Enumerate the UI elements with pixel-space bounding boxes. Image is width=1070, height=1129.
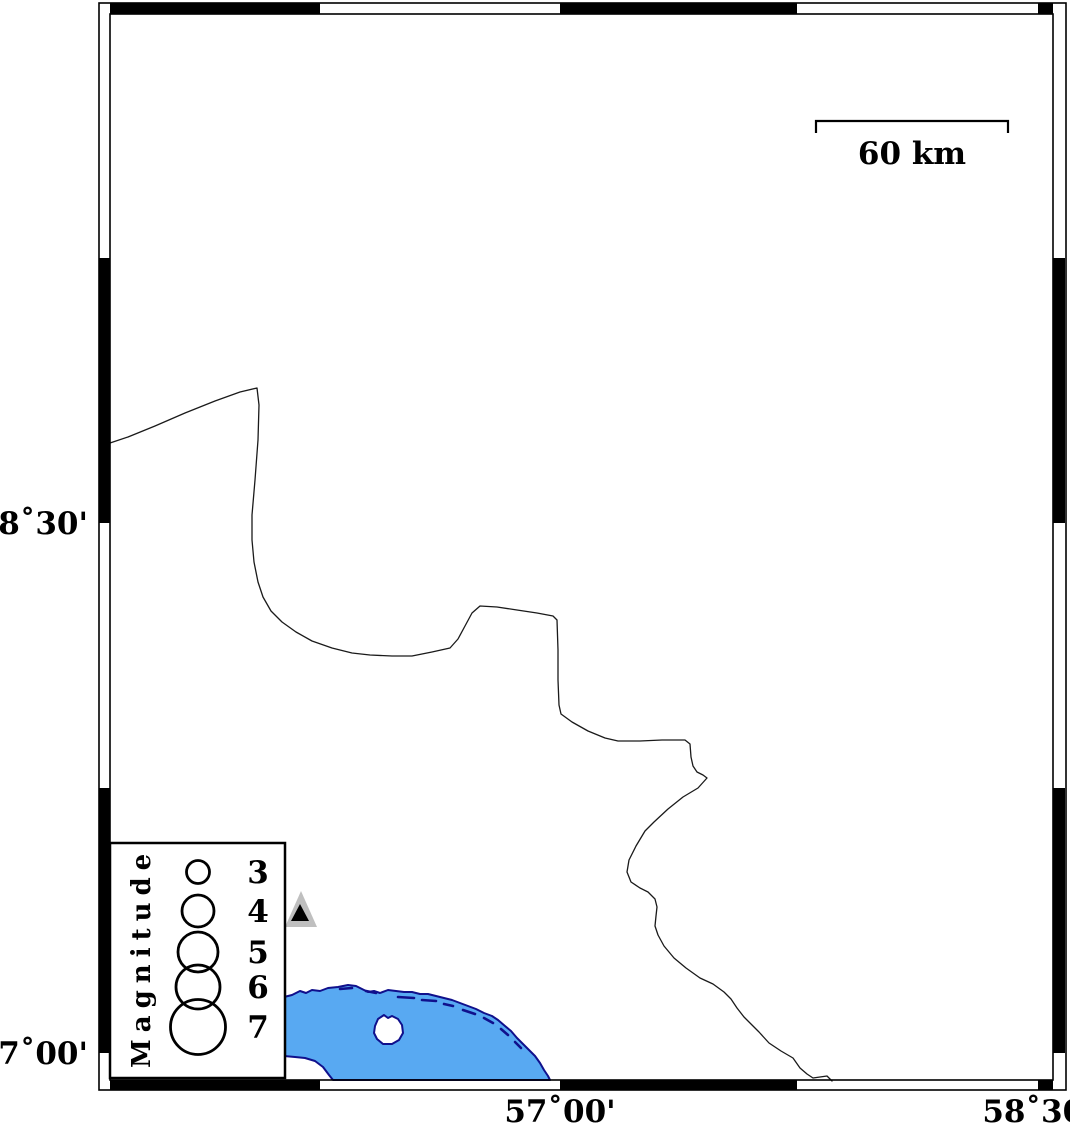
frame-tick-top — [1038, 3, 1053, 14]
coast-dash — [422, 1000, 436, 1001]
magnitude-label-5: 5 — [247, 935, 269, 971]
magnitude-legend: Magnitude 3 4 5 6 7 — [110, 843, 285, 1078]
magnitude-label-3: 3 — [247, 855, 269, 891]
magnitude-label-7: 7 — [247, 1010, 269, 1046]
scale-bar-label: 60 km — [858, 136, 966, 172]
seismicity-map: 28˚30' 27˚00' 57˚00' 58˚30' 60 km Magnit… — [0, 0, 1070, 1129]
legend-title: Magnitude — [127, 847, 157, 1068]
lon-label-58-30: 58˚30' — [982, 1094, 1070, 1129]
map-page: 28˚30' 27˚00' 57˚00' 58˚30' 60 km Magnit… — [0, 0, 1070, 1129]
frame-tick-bottom — [1038, 1080, 1053, 1090]
lon-label-57-00: 57˚00' — [504, 1094, 615, 1129]
frame-tick-right — [1053, 258, 1065, 523]
magnitude-label-4: 4 — [247, 894, 269, 930]
coast-dash — [340, 988, 352, 989]
island — [374, 1015, 403, 1044]
lat-label-28-30: 28˚30' — [0, 506, 88, 542]
frame-tick-left — [99, 788, 110, 1053]
lat-label-27-00: 27˚00' — [0, 1036, 88, 1072]
frame-tick-top — [110, 3, 320, 14]
frame-tick-left — [99, 258, 110, 523]
frame-tick-bottom — [110, 1080, 320, 1090]
coast-dash — [398, 997, 414, 998]
frame-tick-top — [560, 3, 797, 14]
frame-tick-right — [1053, 788, 1065, 1053]
magnitude-label-6: 6 — [247, 970, 269, 1006]
frame-tick-bottom — [560, 1080, 797, 1090]
